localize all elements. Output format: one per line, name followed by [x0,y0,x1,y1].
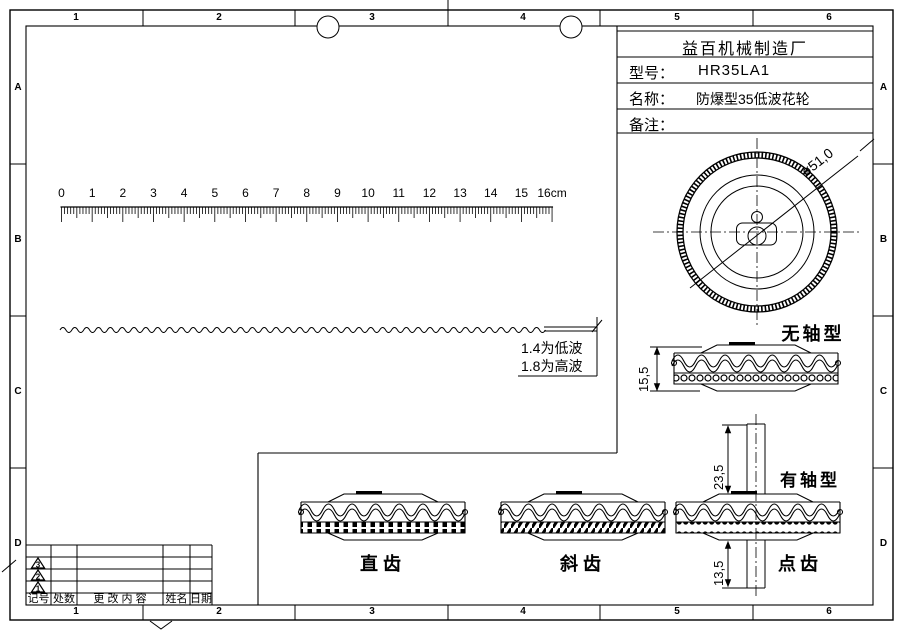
ruler-label-11: 11 [393,186,406,200]
top-zone-6: 6 [814,12,844,24]
wheel-side-view-no-shaft [650,342,841,391]
drawing-sheet: 321 012345678910111213141516cm ø51,0 15,… [0,0,900,631]
bottom-zone-3: 3 [357,606,387,618]
punch-hole-left [317,16,339,38]
shaft-bottom-dimension-text: 13,5 [711,561,726,586]
right-zone-D: D [875,538,892,550]
remark-label: 备注： [629,114,674,135]
knurl-band-helical [501,522,665,533]
ruler-label-14: 14 [484,186,498,200]
left-fold-mark [2,560,16,572]
part-name-value: 防爆型35低波花轮 [696,89,810,109]
top-zone-3: 3 [357,12,387,24]
ruler-label-15: 15 [515,186,529,200]
ruler-label-7: 7 [273,186,280,200]
wheel-side-view-helical [499,491,668,540]
left-zone-D: D [10,538,26,550]
bottom-zone-6: 6 [814,606,844,618]
bottom-zone-4: 4 [508,606,538,618]
wheel-side-view-straight [299,491,468,540]
right-fold-mark [860,139,874,151]
ruler-label-0: 0 [58,186,65,200]
bottom-fold-mark [150,621,172,629]
diameter-dimension-text: ø51,0 [798,145,836,180]
company-name: 益百机械制造厂 [620,35,870,59]
revision-mark-number-2: 2 [36,573,41,582]
ruler-label-6: 6 [242,186,249,200]
knurl-band-straight [301,522,465,533]
wave-note-line2: 1.8为高波 [521,357,582,376]
thickness-dimension-text: 15,5 [636,367,651,392]
ruler-label-2: 2 [119,186,126,200]
label-no-shaft-type: 无轴型 [773,320,853,346]
center-slot [737,223,777,245]
right-zone-A: A [875,82,892,94]
label-with-shaft-type: 有轴型 [770,466,850,491]
punch-hole-right [560,16,582,38]
left-zone-C: C [10,386,26,398]
revision-marks: 321 [32,558,45,594]
shaft-top-dimension-text: 23,5 [711,465,726,490]
ruler-label-9: 9 [334,186,341,200]
right-zone-C: C [875,386,892,398]
revision-header-2: 更 改 内 容 [77,593,163,605]
ruler-label-12: 12 [423,186,437,200]
knurl-band-chain [674,373,838,384]
ruler-label-1: 1 [89,186,96,200]
revision-mark-number-3: 3 [36,561,41,570]
part-name-label: 名称： [629,88,674,109]
revision-header-0: 记号 [26,593,51,605]
right-zone-B: B [875,234,892,246]
wave-sample-line [60,328,545,333]
ruler-label-10: 10 [361,186,375,200]
ruler-label-8: 8 [303,186,310,200]
left-zone-B: B [10,234,26,246]
region-divider [258,26,617,605]
ruler: 012345678910111213141516cm [58,186,567,222]
top-zone-5: 5 [662,12,692,24]
model-label: 型号： [629,62,674,83]
revision-header-1: 处数 [51,593,77,605]
inner-frame [26,26,873,605]
revision-header-3: 姓名 [163,593,190,605]
bottom-zone-5: 5 [662,606,692,618]
ruler-label-3: 3 [150,186,157,200]
wave-note-line1: 1.4为低波 [521,339,582,358]
ruler-label-16cm: 16cm [537,186,566,200]
revision-header-4: 日期 [190,593,212,605]
label-dot-tooth: 点齿 [765,550,835,576]
knurl-band-dots [676,522,840,533]
left-zone-A: A [10,82,26,94]
top-zone-1: 1 [61,12,91,24]
right-zone-ticks [873,164,893,468]
label-straight-tooth: 直齿 [348,550,418,576]
revision-table-rows [26,545,212,593]
top-zone-2: 2 [204,12,234,24]
ruler-label-13: 13 [453,186,467,200]
top-zone-4: 4 [508,12,538,24]
bottom-zone-2: 2 [204,606,234,618]
bottom-zone-1: 1 [61,606,91,618]
label-helical-tooth: 斜齿 [548,550,618,576]
ruler-label-5: 5 [211,186,218,200]
model-value: HR35LA1 [698,62,770,79]
left-zone-ticks [10,164,26,468]
wheel-face-view [653,138,859,325]
ruler-label-4: 4 [181,186,188,200]
